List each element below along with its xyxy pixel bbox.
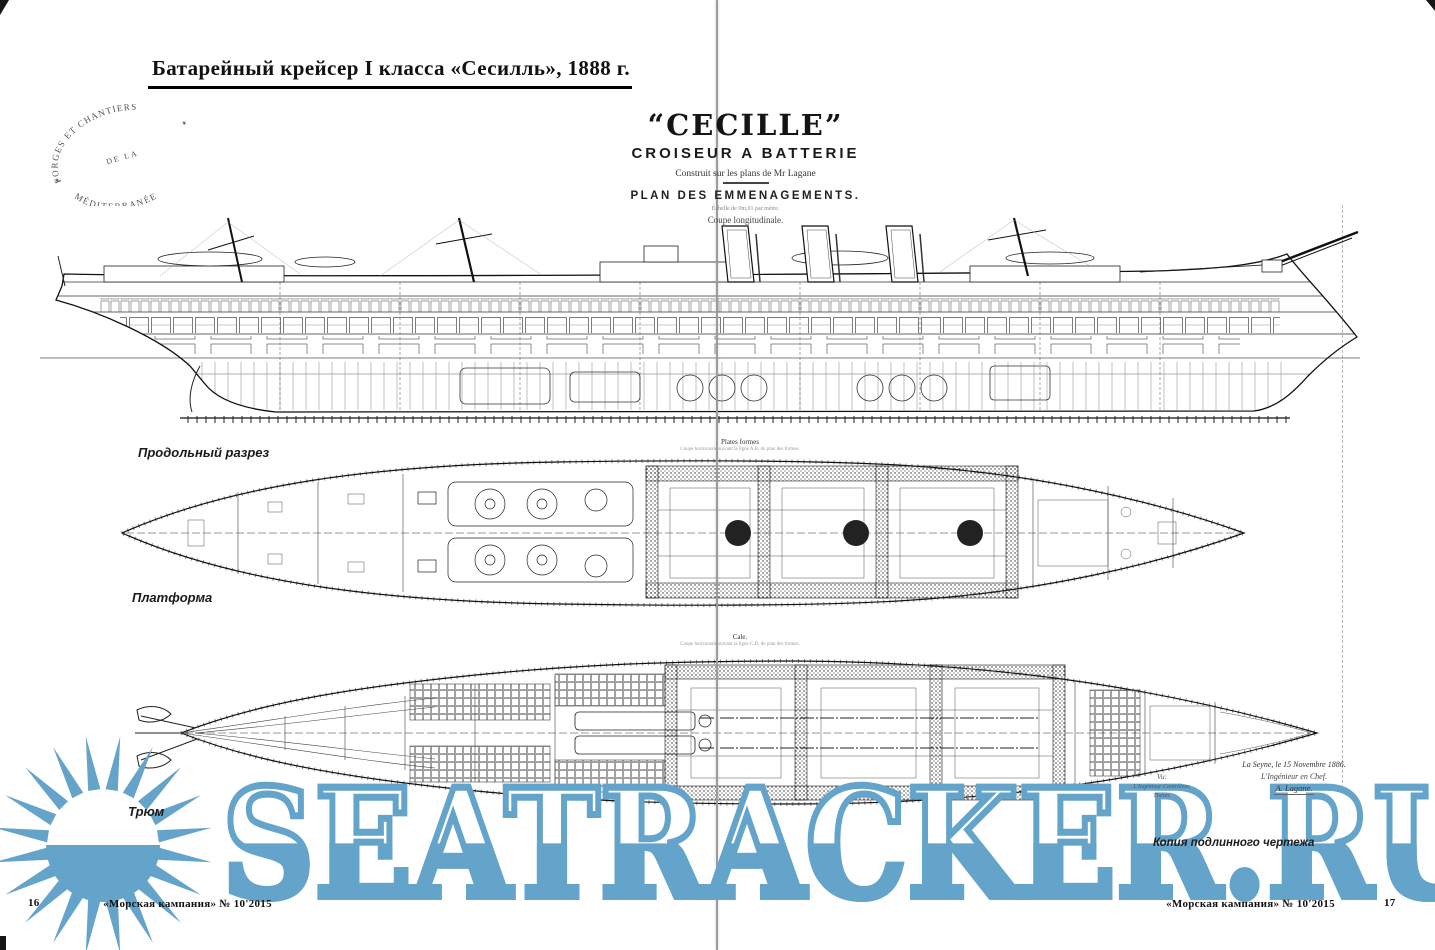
- scan-artifact-top-right: [1426, 0, 1435, 11]
- engineer-name: A. Lagane.: [1205, 783, 1383, 793]
- svg-text:FORGES ET CHANTIERS: FORGES ET CHANTIERS: [46, 104, 153, 185]
- scan-artifact-top-left: [0, 0, 9, 15]
- svg-text:MÉDITERRANÉE: MÉDITERRANÉE: [71, 170, 159, 206]
- ship-name: “CECILLE”: [618, 108, 873, 142]
- flourish-divider: [723, 182, 769, 184]
- controller-name: Théon.: [1106, 792, 1218, 799]
- platform-plan-drawing: [118, 452, 1248, 612]
- page-number-right: 17: [1384, 897, 1396, 909]
- ship-type: CROISEUR A BATTERIE: [618, 145, 873, 162]
- signature-date: La Seyne, le 15 Novembre 1886.: [1205, 760, 1383, 769]
- credit-line: Construit sur les plans de Mr Lagane: [618, 169, 873, 179]
- page-title: Батарейный крейсер I класса «Сесилль», 1…: [148, 56, 634, 81]
- hold-subcaption: Coupe horizontale suivant la ligne C.D. …: [640, 642, 840, 647]
- platform-caption-block: Plates formes Coupe horizontale suivant …: [640, 438, 840, 452]
- shipyard-stamp: FORGES ET CHANTIERS MÉDITERRANÉE DE LA ✶…: [46, 104, 198, 206]
- hold-caption-block: Cale. Coupe horizontale suivant la ligne…: [640, 633, 840, 647]
- hold-caption: Cale.: [640, 633, 840, 641]
- controller-title: L'Ingénieur Contrôleur,: [1106, 784, 1218, 790]
- sun-logo: [0, 730, 220, 950]
- scan-artifact-bottom-left: [0, 936, 6, 950]
- stamp-arc-bottom: MÉDITERRANÉE: [71, 170, 159, 206]
- journal-footer-right: «Морская кампания» № 10'2015: [1163, 898, 1338, 910]
- stamp-middle: DE LA: [105, 149, 140, 167]
- signature-underline: [1274, 794, 1314, 795]
- signature-block-left: Vu: L'Ingénieur Contrôleur, Théon.: [1106, 772, 1218, 799]
- scale-note: Échelle de 0m,01 par mètre.: [618, 206, 873, 212]
- longitudinal-section-drawing: [40, 216, 1360, 435]
- title-underline: [148, 86, 632, 89]
- stamp-star-right-icon: ✶: [180, 119, 188, 128]
- stamp-arc-top: FORGES ET CHANTIERS: [46, 104, 153, 185]
- scanned-magazine-spread: Батарейный крейсер I класса «Сесилль», 1…: [0, 0, 1435, 950]
- vu-label: Vu:: [1106, 772, 1218, 781]
- title-block: “CECILLE” CROISEUR A BATTERIE Construit …: [618, 108, 873, 225]
- label-platform: Платформа: [132, 590, 212, 605]
- copy-note: Копия подлинного чертежа: [1153, 837, 1314, 849]
- label-hold: Трюм: [128, 804, 164, 819]
- side-view-caption: Coupe longitudinale.: [618, 215, 873, 225]
- page-number-left: 16: [28, 897, 40, 909]
- plan-title: PLAN DES EMMENAGEMENTS.: [618, 190, 873, 202]
- platform-subcaption: Coupe horizontale suivant la ligne A.B. …: [640, 447, 840, 452]
- signature-block-right: La Seyne, le 15 Novembre 1886. L'Ingénie…: [1205, 760, 1383, 795]
- label-longitudinal-section: Продольный разрез: [138, 445, 269, 460]
- engineer-title: L'Ingénieur en Chef.: [1205, 772, 1383, 781]
- platform-caption: Plates formes: [640, 438, 840, 446]
- journal-footer-left: «Морская кампания» № 10'2015: [100, 898, 275, 910]
